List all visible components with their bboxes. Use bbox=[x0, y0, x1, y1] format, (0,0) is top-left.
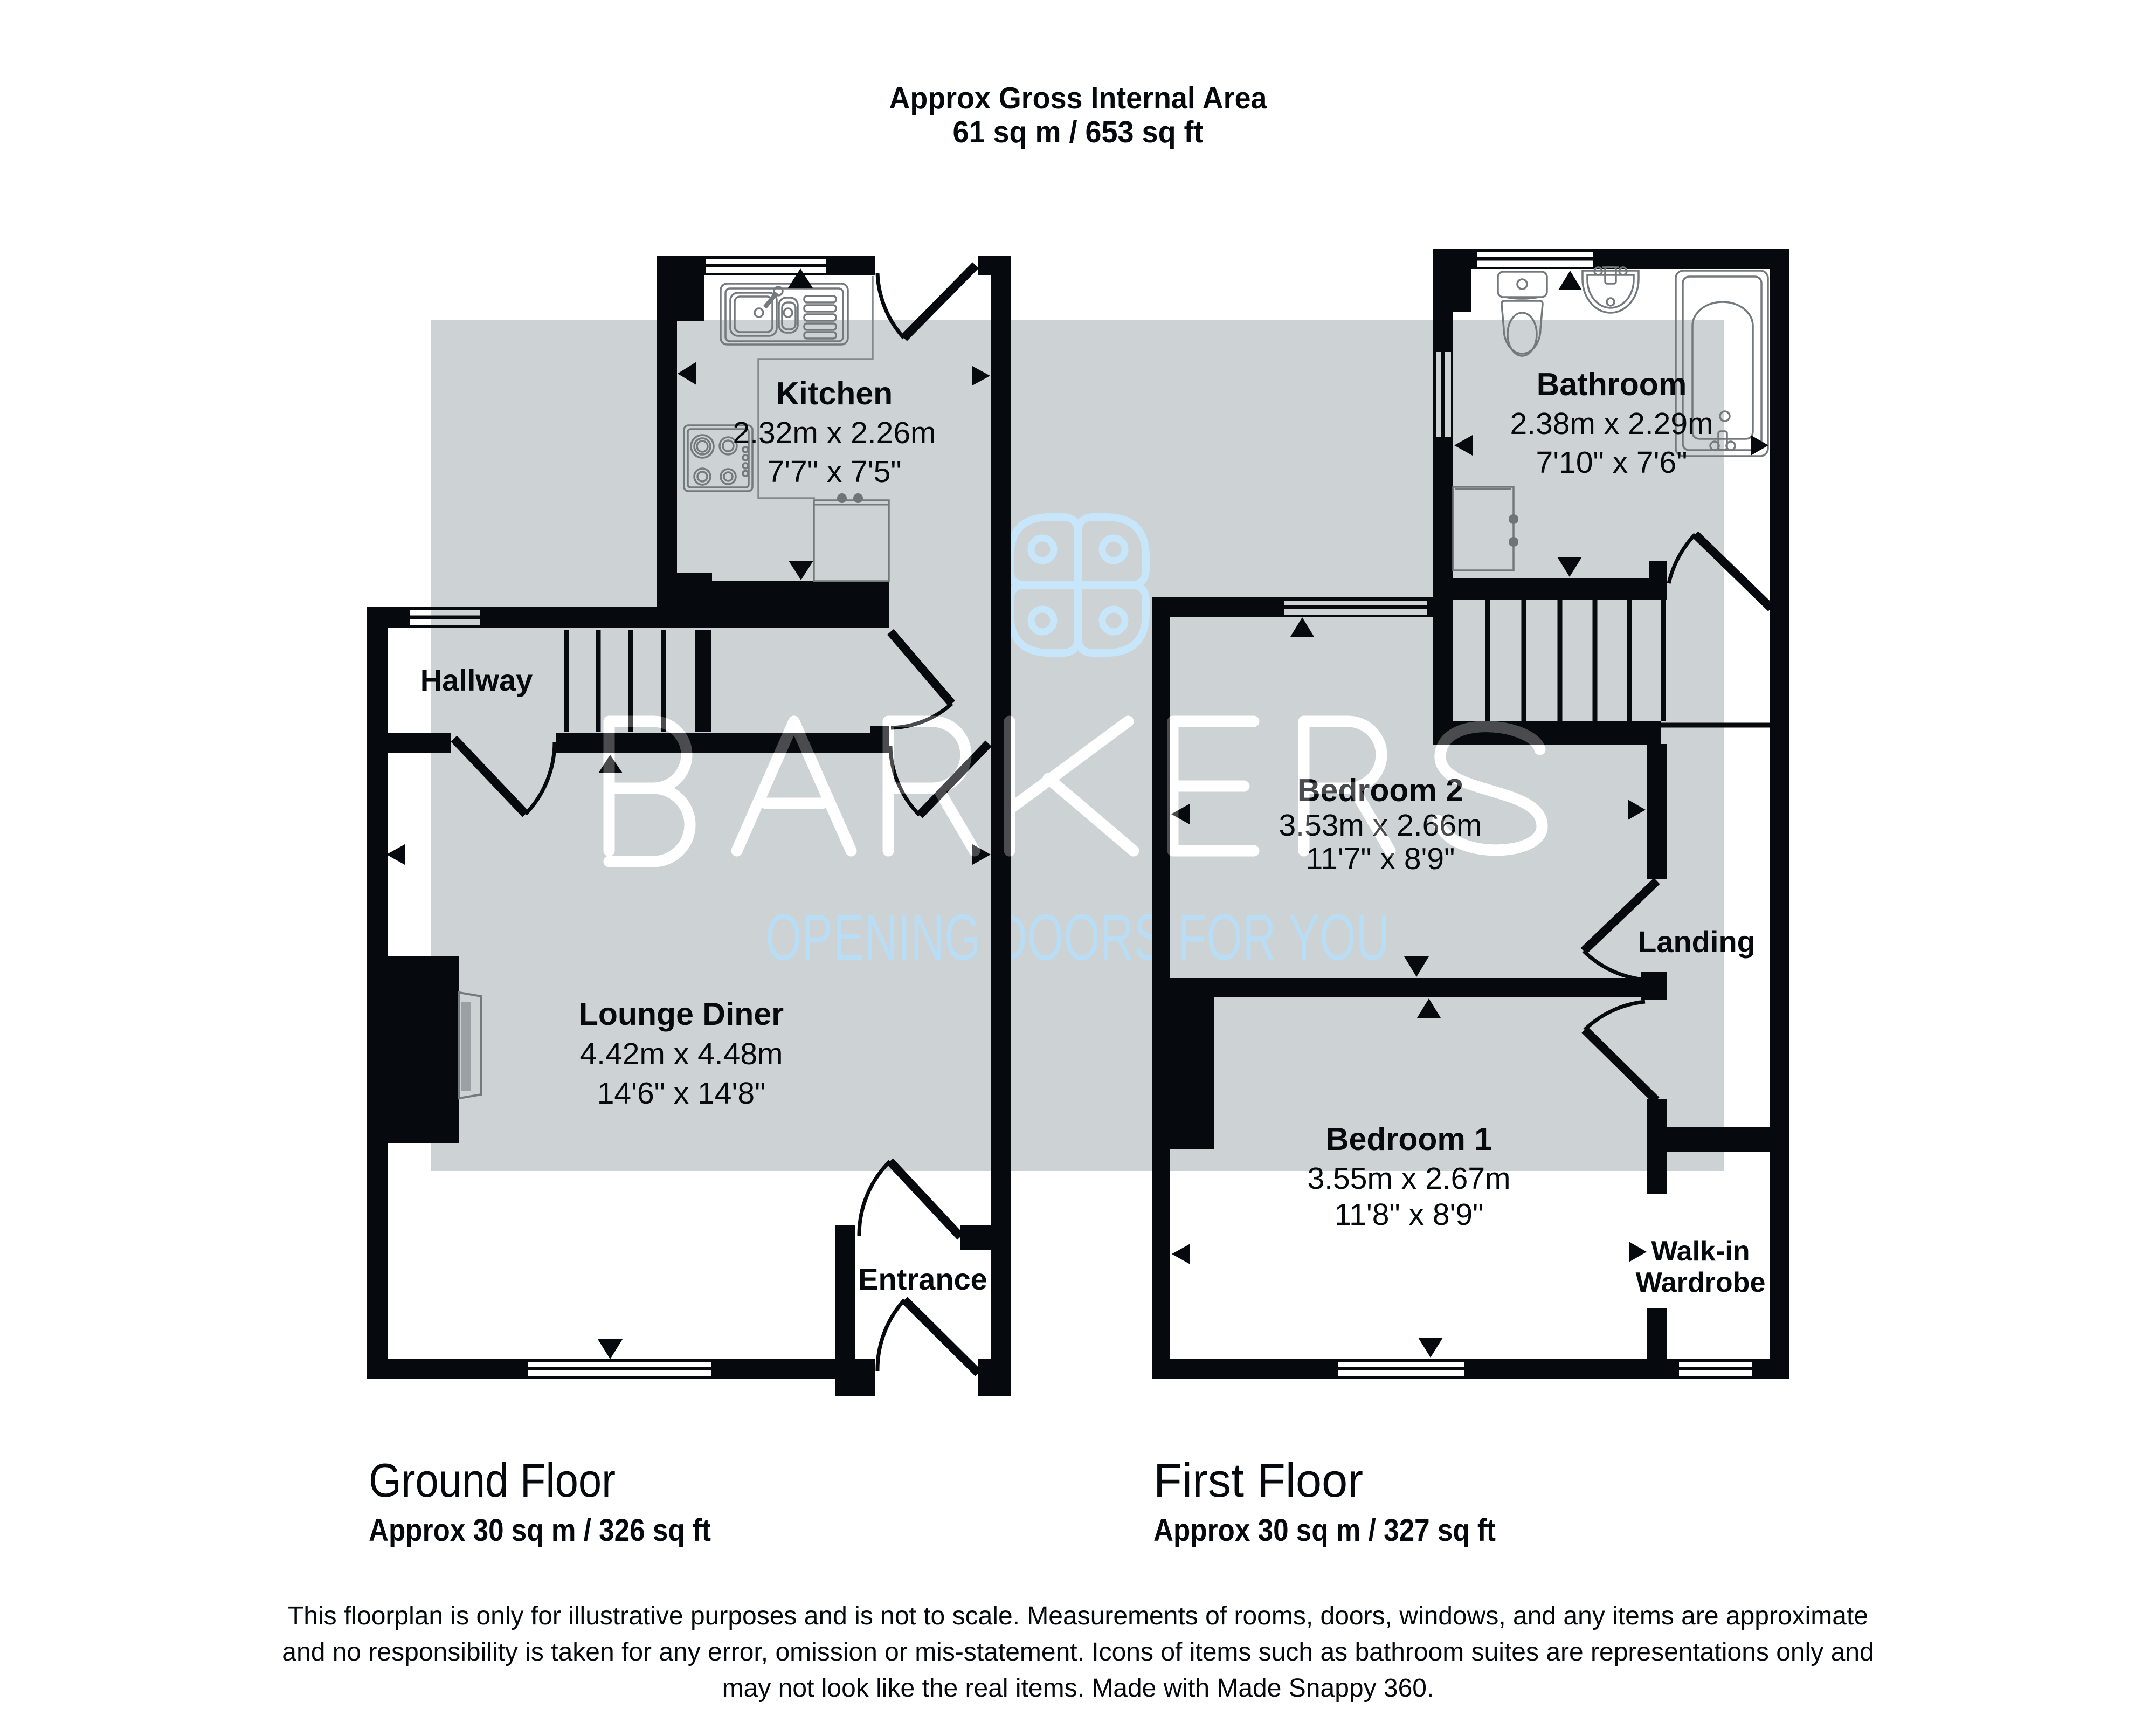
svg-text:may not look like the real ite: may not look like the real items. Made w… bbox=[722, 1674, 1434, 1703]
svg-text:Wardrobe: Wardrobe bbox=[1636, 1267, 1766, 1298]
svg-text:First Floor: First Floor bbox=[1153, 1453, 1363, 1507]
svg-text:and no responsibility is taken: and no responsibility is taken for any e… bbox=[282, 1638, 1874, 1666]
svg-text:Hallway: Hallway bbox=[420, 663, 533, 697]
svg-text:4.42m x 4.48m: 4.42m x 4.48m bbox=[579, 1037, 783, 1071]
svg-text:14'6" x 14'8": 14'6" x 14'8" bbox=[597, 1076, 766, 1111]
svg-text:11'7" x 8'9": 11'7" x 8'9" bbox=[1306, 842, 1455, 876]
svg-text:Kitchen: Kitchen bbox=[776, 376, 893, 411]
svg-text:Bathroom: Bathroom bbox=[1537, 367, 1687, 402]
svg-text:OPENING DOORS FOR YOU: OPENING DOORS FOR YOU bbox=[765, 900, 1390, 974]
svg-text:3.55m x 2.67m: 3.55m x 2.67m bbox=[1307, 1161, 1510, 1196]
svg-text:11'8" x 8'9": 11'8" x 8'9" bbox=[1335, 1197, 1484, 1232]
svg-text:61 sq m / 653 sq ft: 61 sq m / 653 sq ft bbox=[953, 115, 1204, 149]
svg-text:7'7" x 7'5": 7'7" x 7'5" bbox=[767, 454, 901, 489]
svg-text:Approx 30 sq m / 326 sq ft: Approx 30 sq m / 326 sq ft bbox=[369, 1513, 711, 1548]
svg-text:Bedroom 1: Bedroom 1 bbox=[1326, 1121, 1492, 1157]
svg-text:This floorplan is only for ill: This floorplan is only for illustrative … bbox=[288, 1602, 1868, 1630]
svg-text:2.32m x 2.26m: 2.32m x 2.26m bbox=[733, 416, 936, 450]
svg-text:Approx Gross Internal Area: Approx Gross Internal Area bbox=[889, 81, 1268, 115]
svg-text:7'10" x 7'6": 7'10" x 7'6" bbox=[1536, 445, 1688, 480]
svg-text:Walk-in: Walk-in bbox=[1651, 1236, 1750, 1267]
svg-text:Entrance: Entrance bbox=[858, 1262, 987, 1296]
svg-text:Landing: Landing bbox=[1638, 925, 1756, 959]
svg-text:Ground Floor: Ground Floor bbox=[369, 1453, 616, 1507]
svg-text:2.38m x 2.29m: 2.38m x 2.29m bbox=[1510, 407, 1713, 441]
svg-text:Lounge Diner: Lounge Diner bbox=[579, 996, 784, 1032]
svg-text:Approx 30 sq m / 327 sq ft: Approx 30 sq m / 327 sq ft bbox=[1153, 1513, 1496, 1548]
